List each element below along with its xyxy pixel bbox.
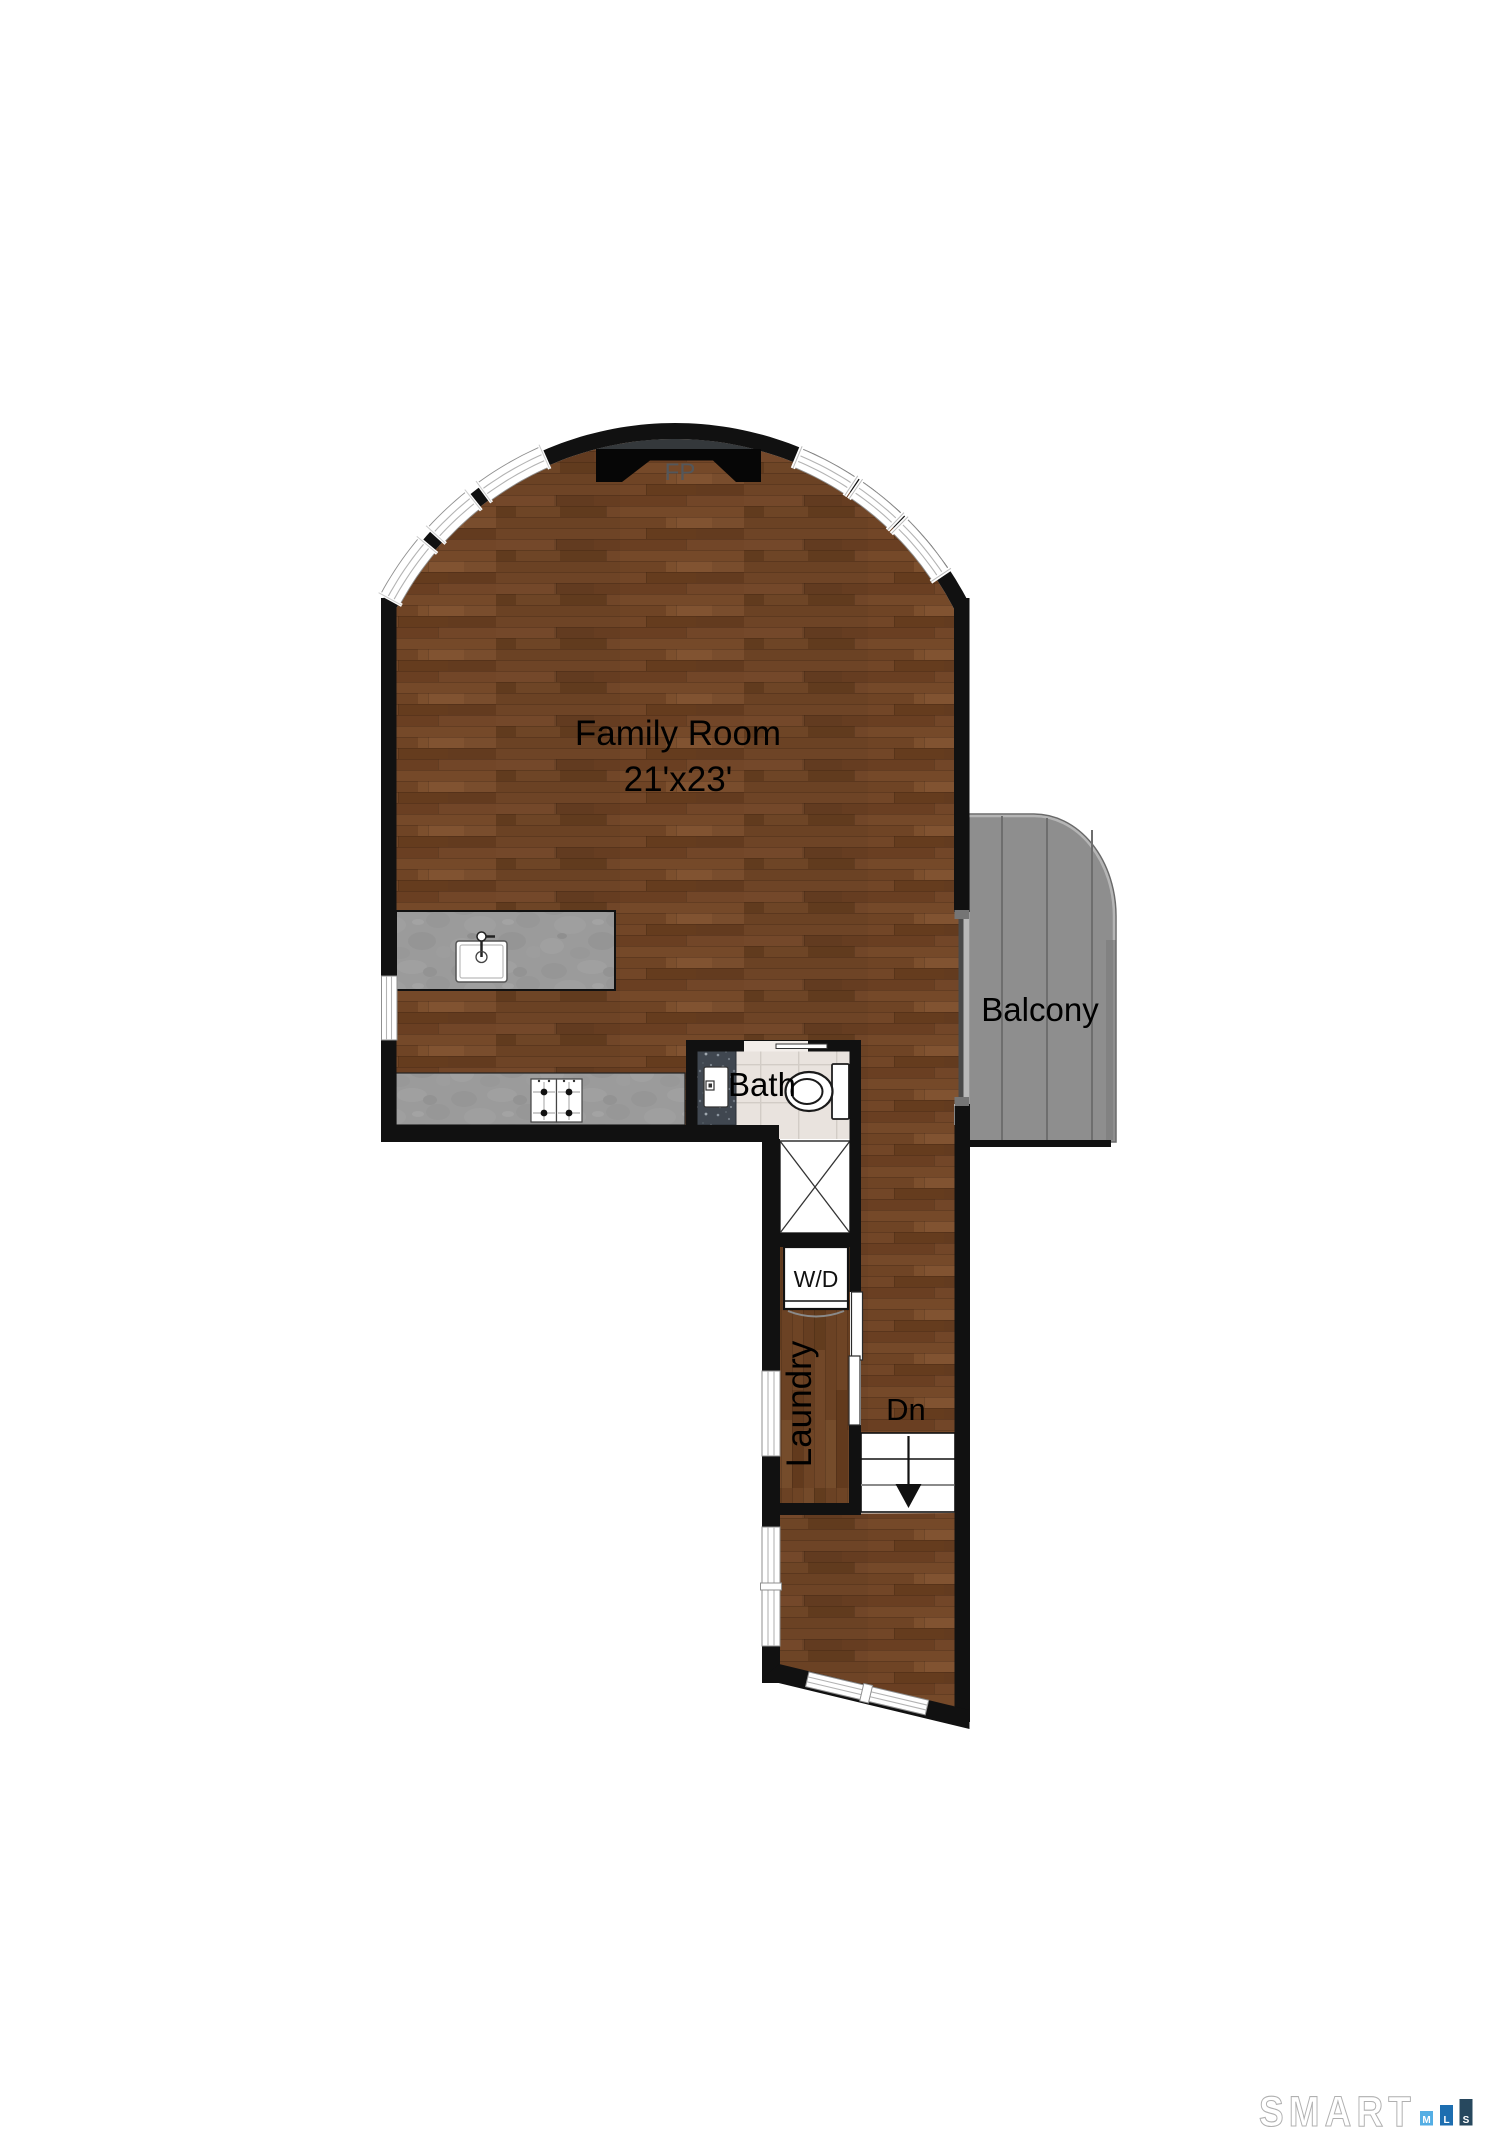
svg-text:M: M [1422,2115,1430,2126]
svg-text:S: S [1463,2115,1470,2126]
svg-text:SMART: SMART [1259,2088,1416,2136]
svg-text:Laundry: Laundry [780,1340,819,1467]
svg-text:Family Room: Family Room [575,714,781,753]
svg-text:Dn: Dn [886,1392,926,1427]
svg-text:Bath: Bath [728,1066,796,1103]
svg-text:Balcony: Balcony [981,991,1099,1028]
svg-text:W/D: W/D [794,1266,839,1292]
svg-text:L: L [1443,2115,1449,2126]
svg-text:21'x23': 21'x23' [624,760,733,799]
svg-text:FP: FP [665,459,696,486]
